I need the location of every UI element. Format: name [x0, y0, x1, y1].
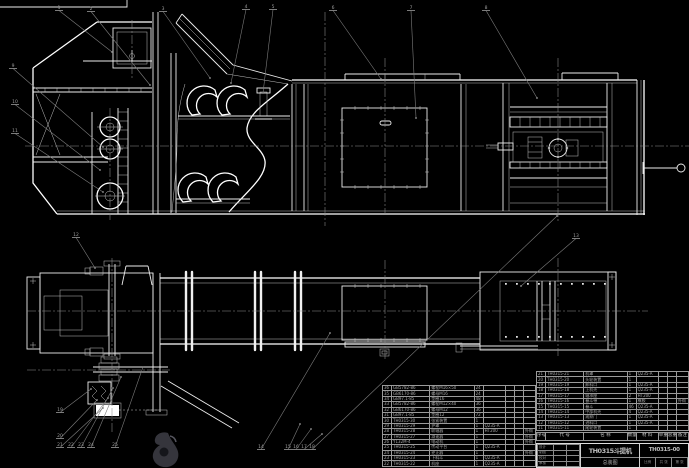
- bom-cell: Q235-A: [483, 461, 505, 466]
- bom-cell: 备注: [676, 433, 688, 441]
- callout-number: 11: [12, 128, 18, 134]
- callout-number: 10: [12, 99, 18, 105]
- bom-cell: TH0315-22: [392, 461, 430, 466]
- callout-number: 21: [57, 442, 63, 448]
- titleblock-footer: 比例共 张第 张: [640, 458, 688, 467]
- bom-cell: [505, 461, 514, 466]
- callout-number: 14: [258, 444, 264, 450]
- callout-number: 2: [90, 6, 93, 12]
- callout-number: 9: [12, 63, 15, 69]
- product-name: TH0315斗提机: [581, 444, 639, 458]
- callout-number: 23: [78, 442, 84, 448]
- bom-cell: 尾轮装置: [584, 425, 627, 430]
- bom-cell: 1: [627, 425, 636, 430]
- callout-number: 1: [58, 5, 61, 11]
- callout-number: 19: [57, 407, 63, 413]
- titleblock-footer-cell: 共 张: [656, 458, 672, 467]
- titleblock-footer-cell: 比例: [640, 458, 656, 467]
- drawing-title: 总装图: [581, 458, 639, 467]
- title-block: 设计制图校对审核 TH0315斗提机 总装图 TH0315-00 比例共 张第 …: [536, 443, 689, 468]
- callout-number: 24: [88, 442, 94, 448]
- bom-row: 审核: [538, 461, 580, 467]
- bom-row: 序号代 号名 称数量材 料单重总重备注: [537, 433, 689, 441]
- bom-cell: 总重: [667, 433, 676, 441]
- callout-number: 25: [112, 442, 118, 448]
- callout-number: 8: [485, 5, 488, 11]
- bom-cell: [514, 461, 523, 466]
- drawing-frame-corner: [0, 0, 127, 7]
- bom-row: 11TH0315-11尾轮装置1: [537, 425, 689, 430]
- bom-cell: 代 号: [546, 433, 584, 441]
- title-block-right: TH0315-00 比例共 张第 张: [640, 444, 688, 467]
- callout-number: 16: [293, 444, 299, 450]
- bom-cell: [636, 425, 658, 430]
- callout-number: 5: [272, 4, 275, 10]
- bom-header-row: 序号代 号名 称数量材 料单重总重备注: [536, 432, 689, 441]
- bom-cell: [676, 425, 688, 430]
- callout-number: 12: [73, 232, 79, 238]
- bom-cell: [523, 461, 535, 466]
- bom-cell: [567, 461, 580, 467]
- bom-cell: [554, 461, 567, 467]
- bom-cell: [667, 425, 676, 430]
- callout-leaders: 1234567891011121314151617181920212223242…: [9, 4, 580, 450]
- callout-number: 22: [68, 442, 74, 448]
- callout-number: 17: [301, 444, 307, 450]
- elevation-view: [25, 12, 689, 226]
- callout-number: 20: [57, 433, 63, 439]
- bom-cell: 1: [474, 461, 483, 466]
- bom-cell: 序号: [537, 433, 546, 441]
- bom-cell: 审核: [538, 461, 554, 467]
- callout-number: 13: [573, 233, 579, 239]
- signature-grid: 设计制图校对审核: [537, 444, 580, 467]
- bom-table-right: 21TH0315-21机罩1Q235-A20TH0315-20头轮装置119TH…: [536, 371, 689, 431]
- bom-cell: 数量: [627, 433, 636, 441]
- callout-number: 15: [285, 444, 291, 450]
- callout-number: 7: [410, 5, 413, 11]
- callout-number: 18: [309, 444, 315, 450]
- watermark-logo: [153, 432, 179, 467]
- bom-cell: 机座: [430, 461, 474, 466]
- bom-cell: TH0315-11: [546, 425, 584, 430]
- callout-number: 4: [245, 4, 248, 10]
- title-block-middle: TH0315斗提机 总装图: [580, 444, 640, 467]
- callout-number: 6: [332, 5, 335, 11]
- cad-canvas: 1234567891011121314151617181920212223242…: [0, 0, 689, 468]
- bom-table-left: 36GB5782-86螺栓M16×502435GB6170-86螺母M16243…: [382, 385, 536, 467]
- bom-cell: 材 料: [636, 433, 658, 441]
- callout-number: 3: [162, 6, 165, 12]
- bom-cell: 单重: [658, 433, 667, 441]
- drawing-number: TH0315-00: [640, 444, 688, 458]
- bom-cell: 22: [383, 461, 392, 466]
- bom-cell: 11: [537, 425, 546, 430]
- bom-cell: [658, 425, 667, 430]
- titleblock-footer-cell: 第 张: [672, 458, 688, 467]
- bom-cell: 名 称: [584, 433, 627, 441]
- bom-row: 22TH0315-22机座1Q235-A: [383, 461, 536, 466]
